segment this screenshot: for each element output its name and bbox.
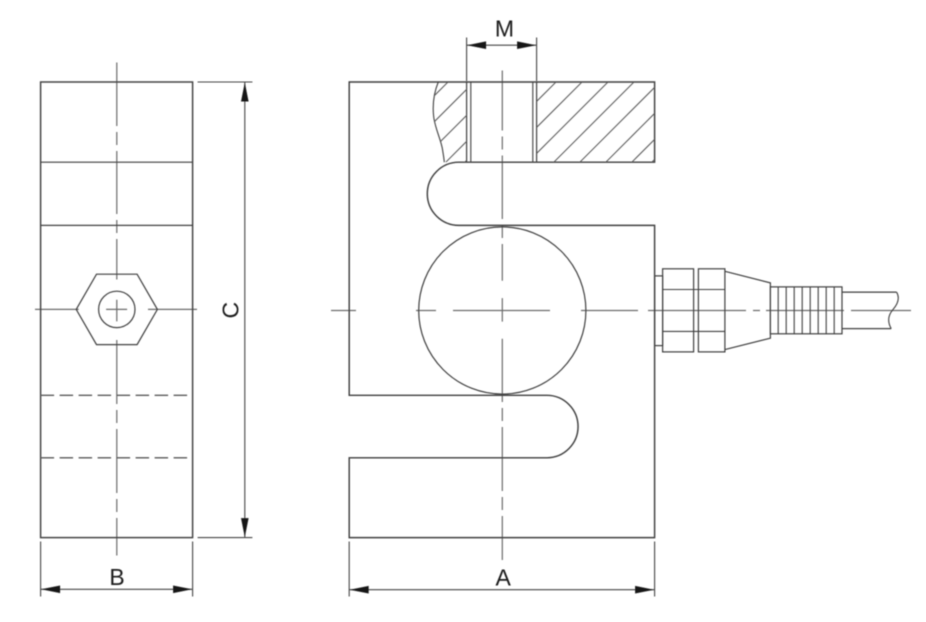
svg-text:C: C <box>217 302 243 319</box>
svg-text:A: A <box>496 564 512 590</box>
svg-text:B: B <box>109 564 124 590</box>
svg-text:M: M <box>495 16 514 42</box>
